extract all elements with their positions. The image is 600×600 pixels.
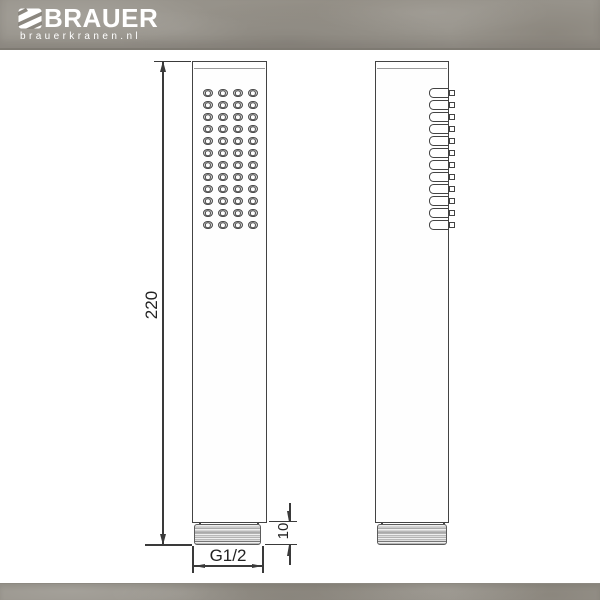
nozzle-icon [203,161,213,170]
side-nozzle-profile [429,124,456,134]
nozzle-icon [248,149,258,158]
nozzle-icon [233,149,243,158]
side-nozzle-profile [429,184,456,194]
side-nozzle-profile [429,172,456,182]
brauer-logo: BRAUER brauerkranen.nl [18,7,158,42]
side-nozzle-tip [449,174,456,181]
nozzle-icon [218,161,228,170]
nozzle-icon [218,113,228,122]
side-nozzle-profile [429,100,456,110]
dim-220-arrow-down-icon [160,534,166,545]
nozzle-icon [248,221,258,230]
nozzle-icon [233,185,243,194]
nozzle-icon [203,173,213,182]
dim-g12-extension-right [262,546,263,573]
side-nozzle-body [429,208,449,218]
nozzle-icon [248,185,258,194]
nozzle-icon [248,197,258,206]
side-nozzle-profile [429,112,456,122]
side-nozzle-body [429,160,449,170]
nozzle-icon [218,101,228,110]
side-nozzle-body [429,100,449,110]
side-nozzle-body [429,148,449,158]
nozzle-icon [233,89,243,98]
side-nozzle-profile [429,196,456,206]
side-thread [377,524,447,545]
side-nozzle-tip [449,162,456,169]
side-cap-line [377,68,447,69]
front-cap-line [194,68,265,69]
nozzle-icon [248,137,258,146]
dim-220-label: 220 [143,283,161,327]
nozzle-icon [203,149,213,158]
nozzle-icon [203,89,213,98]
side-nozzle-body [429,220,449,230]
nozzle-icon [248,89,258,98]
dim-g12-extension-left [192,546,193,573]
side-nozzle-tip [449,114,456,121]
dim-10-label: 10 [274,514,292,548]
side-nozzle-profile [429,136,456,146]
side-nozzle-tip [449,198,456,205]
nozzle-icon [218,173,228,182]
side-nozzle-body [429,184,449,194]
nozzle-icon [203,137,213,146]
nozzle-icon [218,89,228,98]
side-nozzle-profile [429,208,456,218]
nozzle-icon [203,185,213,194]
nozzle-icon [203,101,213,110]
side-nozzle-tip [449,210,456,217]
side-nozzle-body [429,196,449,206]
nozzle-icon [218,221,228,230]
side-nozzle-body [429,172,449,182]
side-nozzle-profile [429,220,456,230]
side-nozzle-profile [429,88,456,98]
brand-name: BRAUER [44,7,158,29]
side-nozzle-tip [449,102,456,109]
front-thread [194,524,261,545]
nozzle-icon [218,137,228,146]
top-texture-band: BRAUER brauerkranen.nl [0,0,600,50]
dim-220-extension-bottom [145,544,192,545]
nozzle-icon [233,197,243,206]
nozzle-icon [233,125,243,134]
nozzle-icon [233,221,243,230]
nozzle-icon [218,125,228,134]
brauer-monogram-icon [18,8,42,29]
nozzle-icon [233,161,243,170]
side-nozzle-body [429,136,449,146]
nozzle-icon [203,209,213,218]
side-nozzle-body [429,88,449,98]
nozzle-icon [233,113,243,122]
nozzle-icon [248,161,258,170]
side-nozzle-tip [449,126,456,133]
side-nozzle-column [429,88,456,232]
bottom-texture-band [0,583,600,600]
brand-website: brauerkranen.nl [20,31,158,42]
nozzle-icon [218,197,228,206]
nozzle-icon [233,209,243,218]
nozzle-icon [218,149,228,158]
nozzle-icon [203,125,213,134]
side-nozzle-tip [449,150,456,157]
dim-220-line [162,61,163,545]
side-nozzle-profile [429,160,456,170]
nozzle-icon [218,185,228,194]
nozzle-icon [203,221,213,230]
nozzle-grid [200,87,260,231]
nozzle-icon [203,197,213,206]
dim-220-arrow-up-icon [160,61,166,72]
nozzle-icon [248,209,258,218]
side-nozzle-profile [429,148,456,158]
side-nozzle-tip [449,186,456,193]
nozzle-icon [233,101,243,110]
nozzle-icon [233,173,243,182]
side-nozzle-tip [449,222,456,229]
dim-g12-label: G1/2 [200,547,256,565]
nozzle-icon [233,137,243,146]
side-nozzle-tip [449,138,456,145]
nozzle-icon [248,125,258,134]
product-drawing-page: BRAUER brauerkranen.nl 220 [0,0,600,600]
nozzle-icon [248,101,258,110]
nozzle-icon [248,113,258,122]
side-nozzle-body [429,112,449,122]
side-nozzle-body [429,124,449,134]
nozzle-icon [203,113,213,122]
nozzle-icon [248,173,258,182]
nozzle-icon [218,209,228,218]
side-nozzle-tip [449,90,456,97]
